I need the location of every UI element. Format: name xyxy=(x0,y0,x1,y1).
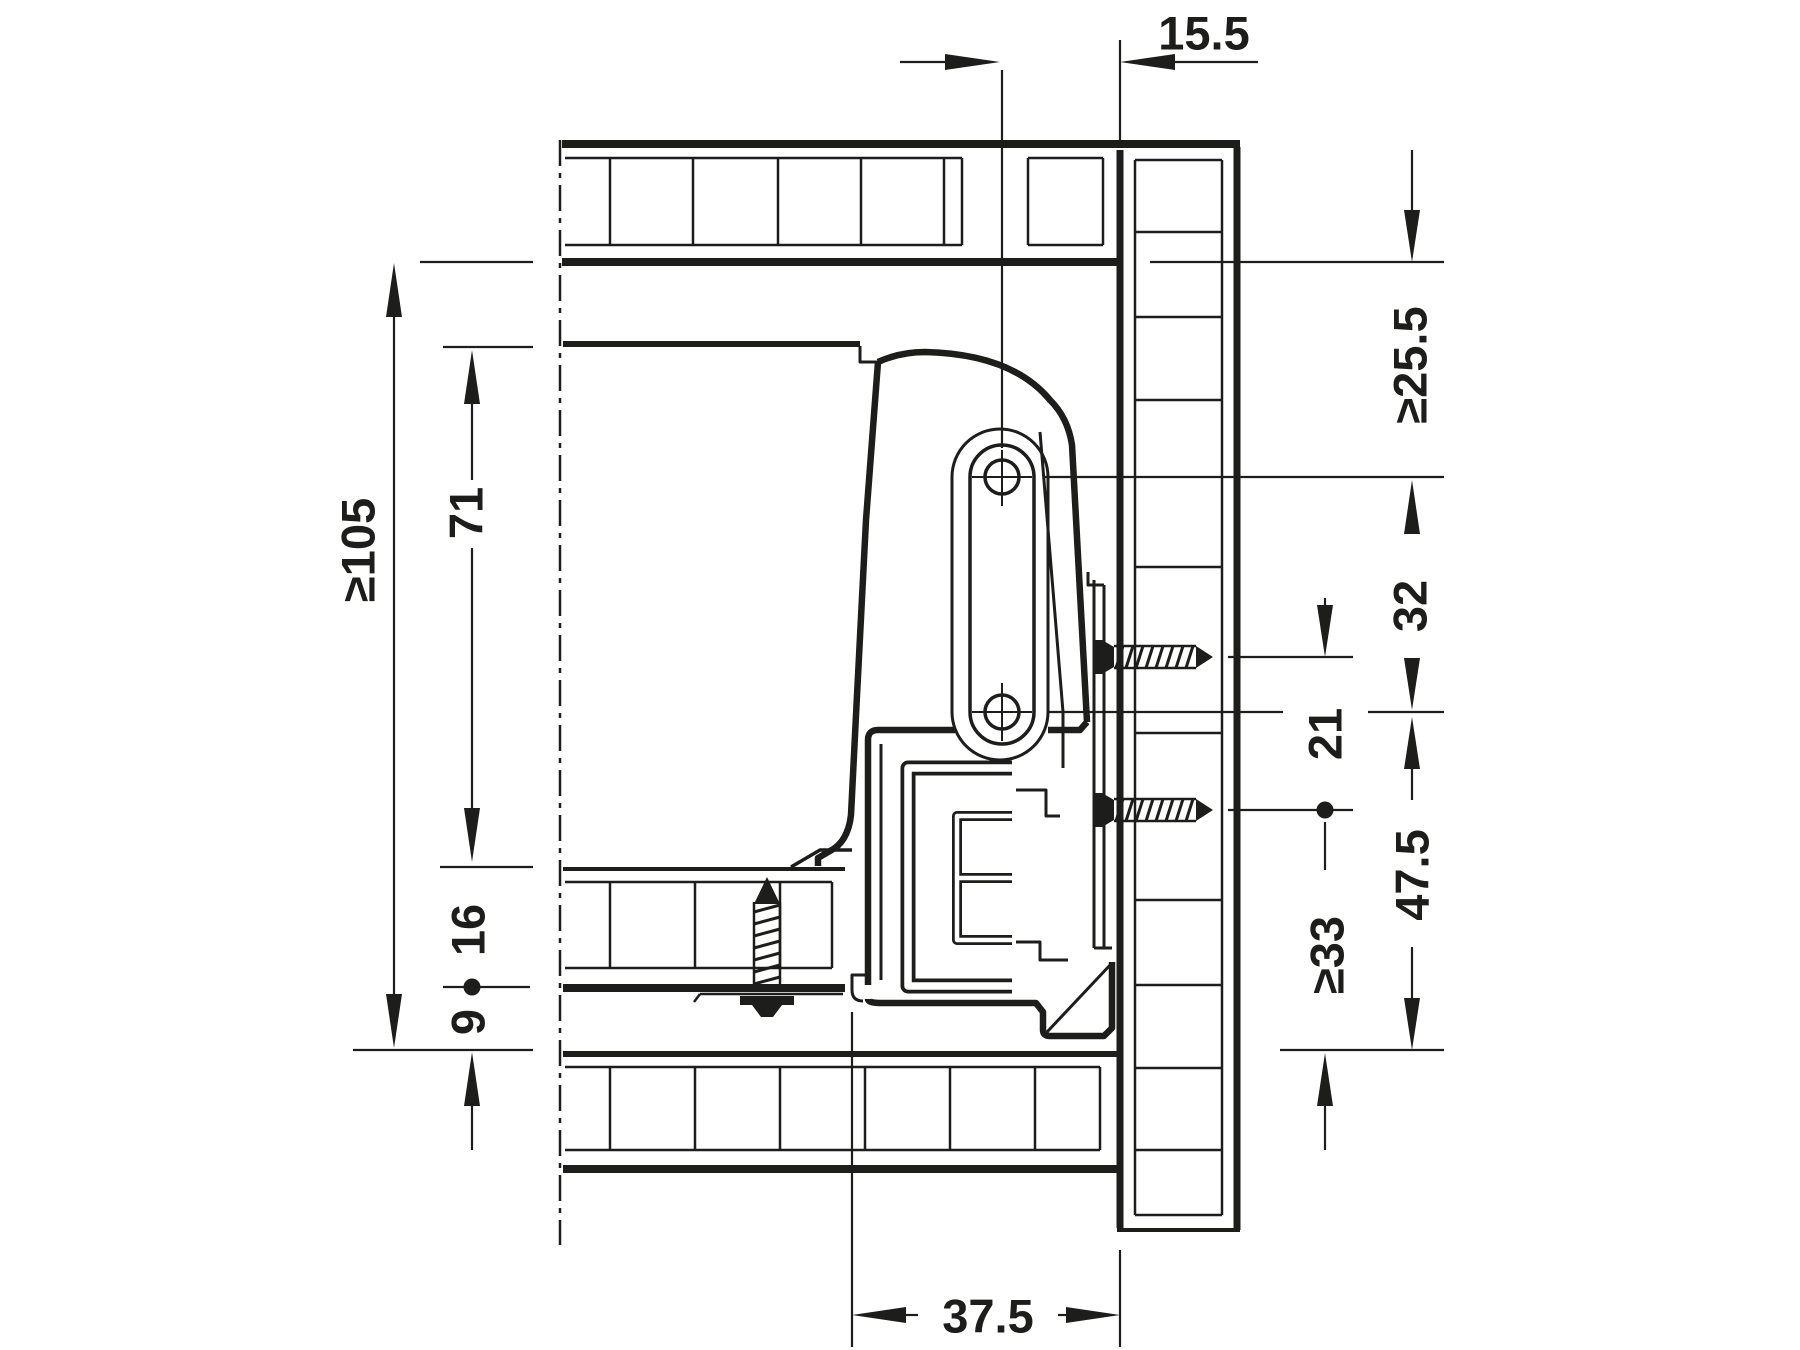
dim-side-height xyxy=(464,350,480,862)
drawer-bottom-panel xyxy=(563,869,845,988)
dim-bottom-panel xyxy=(464,979,481,1151)
label-105: ≥105 xyxy=(332,498,385,602)
drawer-side-profile xyxy=(563,344,1087,866)
dimension-labels: 15.5 ≥105 71 16 9 ≥25.5 32 21 47.5 ≥33 3… xyxy=(332,7,1439,1343)
dim-installed-height xyxy=(386,263,402,1048)
mounting-screw-lower xyxy=(1093,793,1213,827)
label-16: 16 xyxy=(442,904,495,956)
front-panel xyxy=(1117,147,1240,1230)
mounting-screw-upper xyxy=(1093,640,1213,674)
label-33: ≥33 xyxy=(1301,916,1354,994)
label-21: 21 xyxy=(1299,708,1352,760)
label-32: 32 xyxy=(1384,580,1437,632)
label-9: 9 xyxy=(442,1009,495,1035)
bottom-fixing-screw xyxy=(694,877,843,1017)
label-37-5: 37.5 xyxy=(942,1290,1033,1343)
bottom-panel xyxy=(563,1054,1117,1169)
label-71: 71 xyxy=(440,487,493,539)
technical-drawing-page: 15.5 ≥105 71 16 9 ≥25.5 32 21 47.5 ≥33 3… xyxy=(0,0,1800,1350)
drawing-canvas: 15.5 ≥105 71 16 9 ≥25.5 32 21 47.5 ≥33 3… xyxy=(0,0,1800,1350)
cabinet-top-panel xyxy=(562,144,1240,262)
label-15-5: 15.5 xyxy=(1158,7,1249,60)
label-47-5: 47.5 xyxy=(1386,829,1439,920)
label-25-5: ≥25.5 xyxy=(1384,306,1437,423)
dim-system32 xyxy=(1404,658,1420,710)
